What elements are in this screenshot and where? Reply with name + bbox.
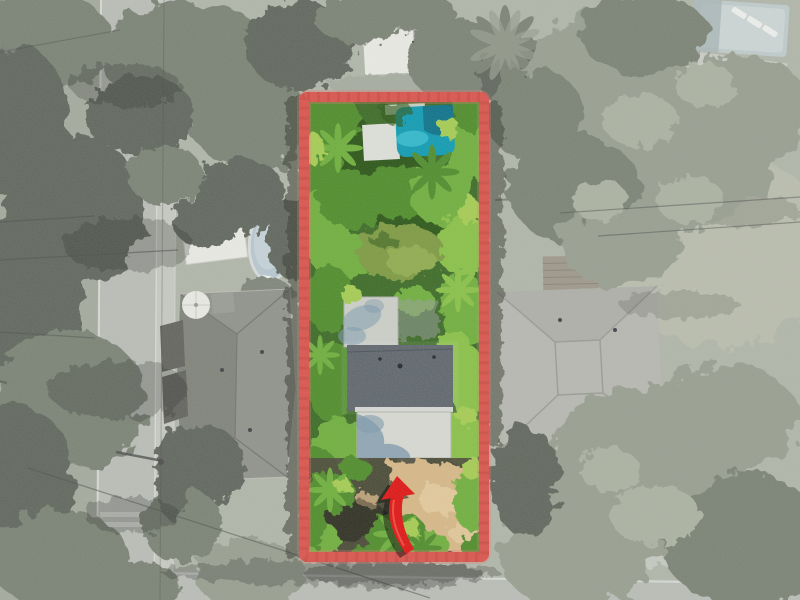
- aerial-photo-canvas: [0, 0, 800, 600]
- photo-grain: [0, 0, 800, 600]
- aerial-photo: [0, 0, 800, 600]
